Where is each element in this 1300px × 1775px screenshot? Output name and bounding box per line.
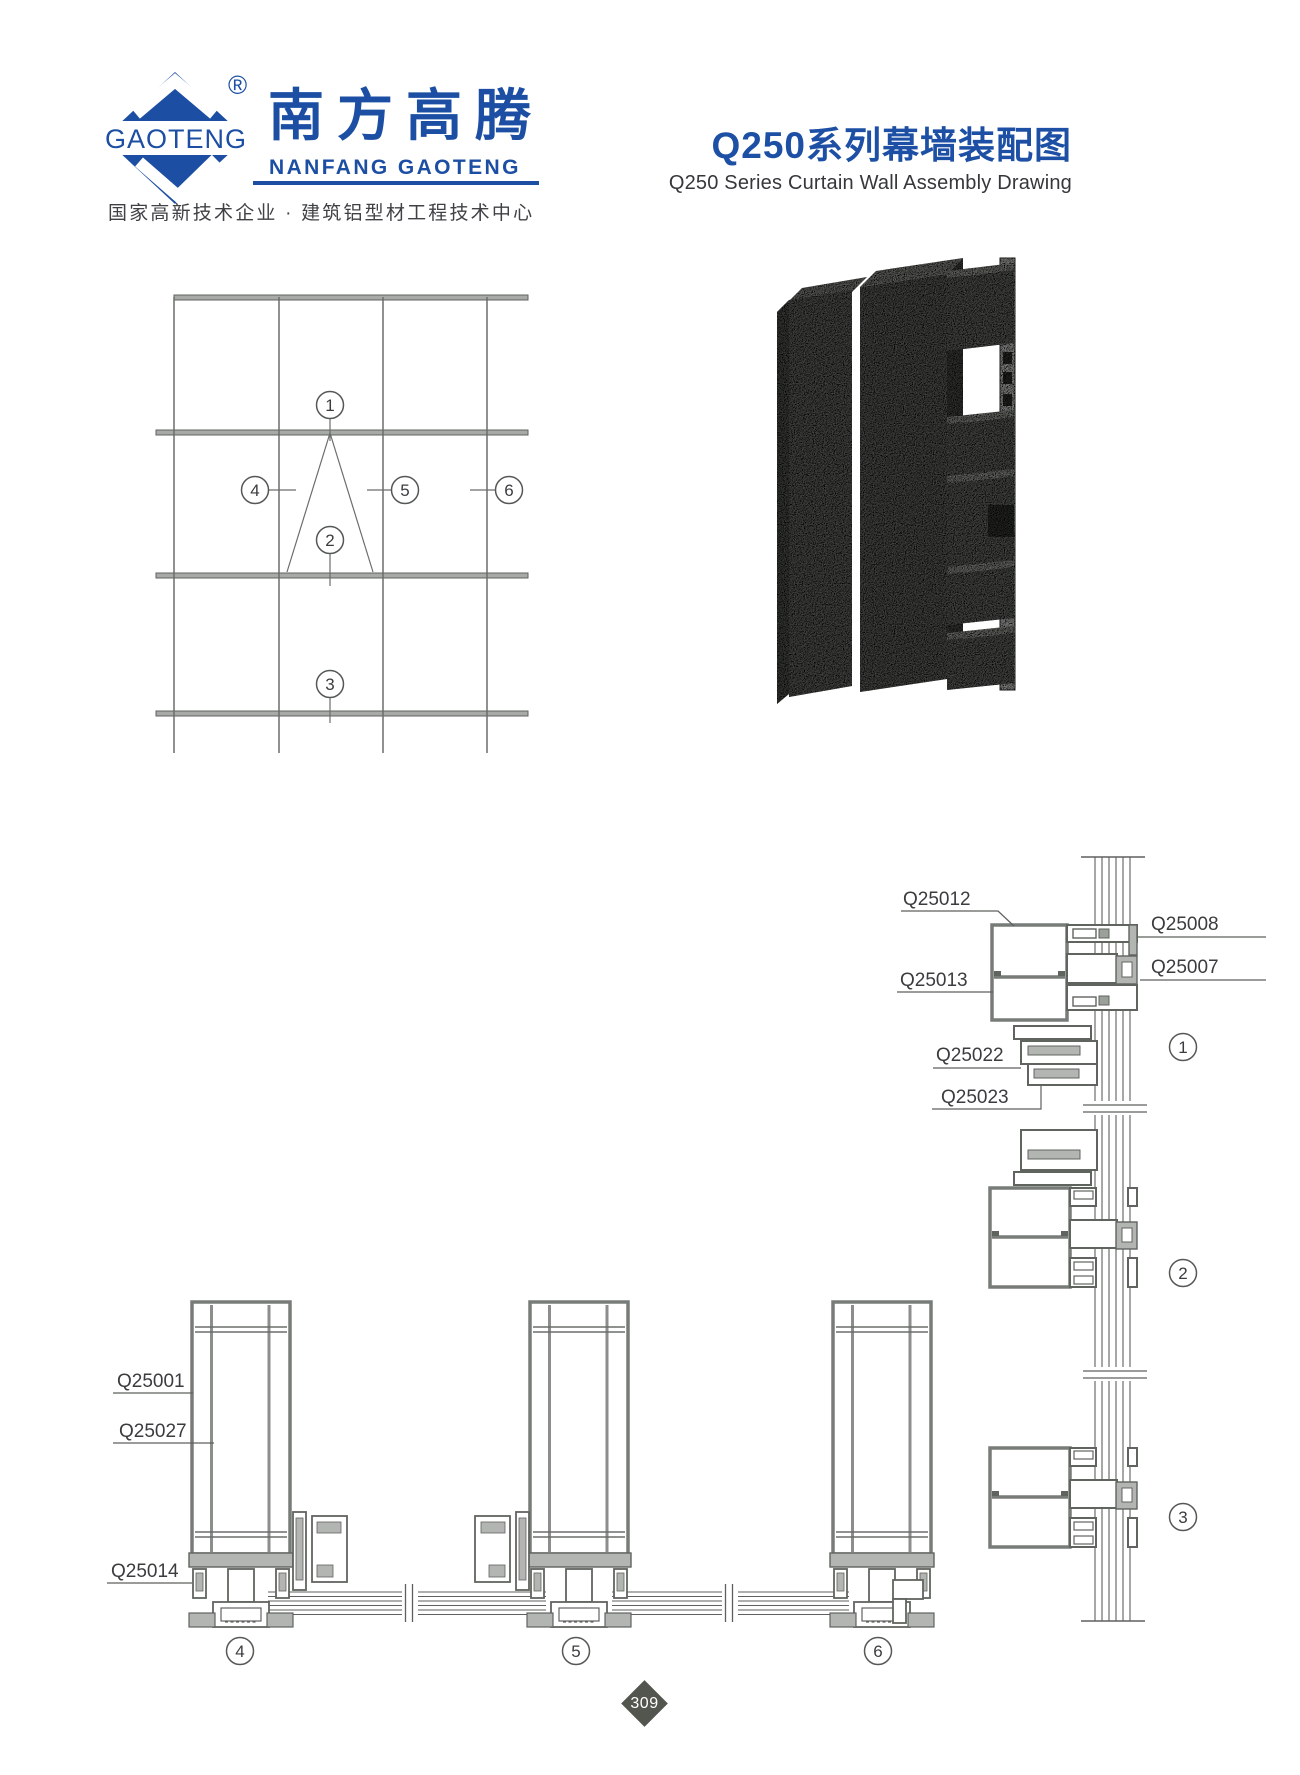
detail-1-assembly: [992, 925, 1137, 1085]
marker-5: 5: [571, 1642, 580, 1661]
label-q25013: Q25013: [900, 970, 968, 991]
callout-5: 5: [400, 481, 409, 500]
marker-1: 1: [1178, 1038, 1187, 1057]
callout-4: 4: [250, 481, 259, 500]
jamb-section-6: [830, 1302, 934, 1627]
detail-2-assembly: [990, 1130, 1137, 1287]
label-q25023: Q25023: [941, 1087, 1009, 1108]
callout-1: 1: [325, 396, 334, 415]
page-number-diamond: 309: [621, 1680, 668, 1727]
jamb-section-5: [527, 1302, 631, 1627]
marker-2: 2: [1178, 1264, 1187, 1283]
vent-attach-5: [475, 1512, 529, 1590]
front-column-front: [860, 274, 947, 692]
callout-6: 6: [504, 481, 513, 500]
elevation-drawing: 1 2 3 4 5 6: [156, 295, 528, 753]
label-q25007: Q25007: [1151, 957, 1219, 978]
label-q25001: Q25001: [117, 1371, 185, 1392]
horizontal-section-markers: 4 5 6: [227, 1638, 892, 1665]
detail-3-assembly: [990, 1448, 1137, 1547]
left-column-front: [789, 290, 852, 697]
drawing-canvas: 1 2 3 4 5 6: [0, 0, 1300, 1775]
catalog-page: GAOTENG ® 南方高腾 NANFANG GAOTENG 国家高新技术企业 …: [0, 0, 1300, 1775]
label-q25014: Q25014: [111, 1561, 179, 1582]
callout-3: 3: [325, 675, 334, 694]
label-q25022: Q25022: [936, 1045, 1004, 1066]
iso-render: [777, 258, 1015, 704]
marker-3: 3: [1178, 1508, 1187, 1527]
label-q25012: Q25012: [903, 889, 971, 910]
horizontal-section-details: Q25001 Q25027 Q25014 4 5 6: [107, 1302, 934, 1665]
vertical-section-details: Q25012 Q25013 Q25022 Q25023 Q25008 Q2500…: [897, 857, 1266, 1621]
vent-attach-4: [293, 1512, 347, 1590]
page-number: 309: [628, 1687, 661, 1720]
label-q25027: Q25027: [119, 1421, 187, 1442]
jamb-section-4: [189, 1302, 293, 1627]
label-q25008: Q25008: [1151, 914, 1219, 935]
elevation-callout-leaders: [268, 418, 496, 723]
vertical-section-markers: 1 2 3: [1170, 1034, 1197, 1531]
callout-2: 2: [325, 531, 334, 550]
left-column-side: [777, 300, 789, 704]
marker-4: 4: [235, 1642, 244, 1661]
marker-6: 6: [873, 1642, 882, 1661]
elevation-callouts: 1 2 3 4 5 6: [242, 392, 523, 698]
